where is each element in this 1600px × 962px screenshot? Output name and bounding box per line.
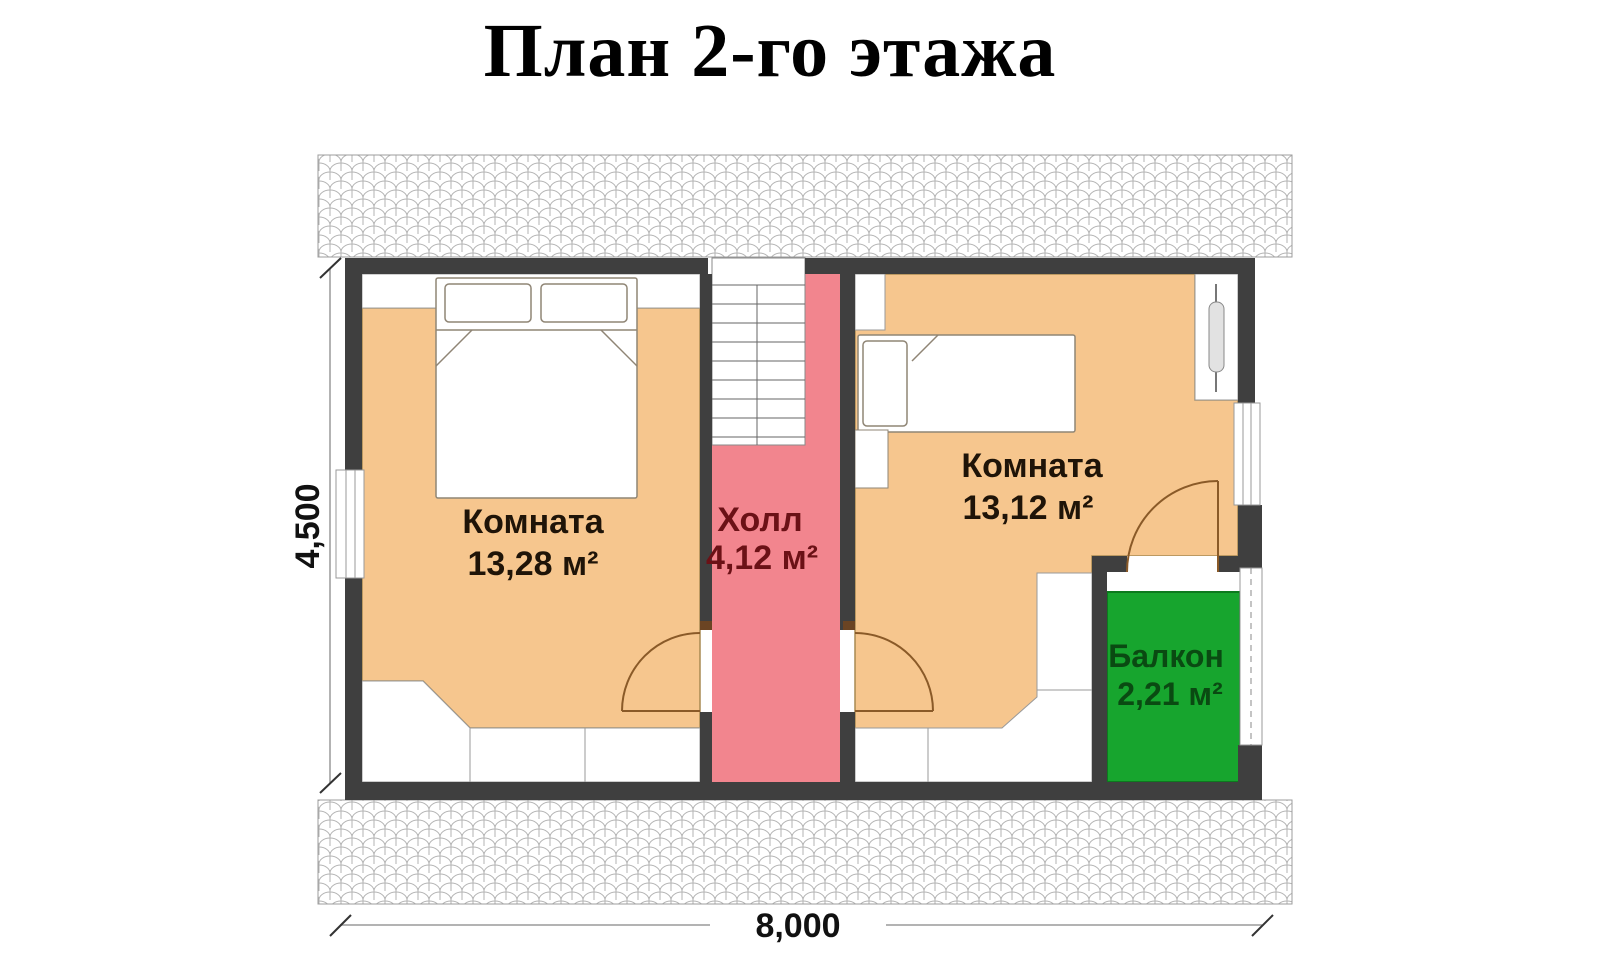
double-bed [436,278,637,498]
floor-plan-drawing: 4,500 8,000 [0,0,1600,962]
balcony-label: Балкон [1108,638,1224,674]
pillow [445,284,531,322]
window-left [336,470,364,578]
hall-area: 4,12 м² [706,539,818,577]
bedroom-left-label: Комната [462,503,604,541]
dimension-horizontal-label: 8,000 [755,907,840,945]
balcony-threshold [1127,556,1218,592]
pillow [863,341,907,426]
bedroom-right-area: 13,12 м² [962,489,1093,527]
balcony-area: 2,21 м² [1117,676,1223,712]
roof-hatch-top [318,155,1292,257]
pillow [541,284,627,322]
staircase [712,258,805,445]
bedroom-right-niche [855,274,885,330]
hall-label: Холл [717,501,802,539]
balcony-railing [1240,568,1262,745]
floor-plan-page: План 2-го этажа 4,500 8,000 [0,0,1600,962]
nightstand [855,430,888,488]
bedroom-right-label: Комната [961,447,1103,485]
bedroom-left-area: 13,28 м² [467,545,598,583]
dimension-vertical-label: 4,500 [289,483,327,568]
window-right [1234,403,1260,505]
roof-hatch-bottom [318,800,1292,904]
single-bed [858,335,1075,432]
